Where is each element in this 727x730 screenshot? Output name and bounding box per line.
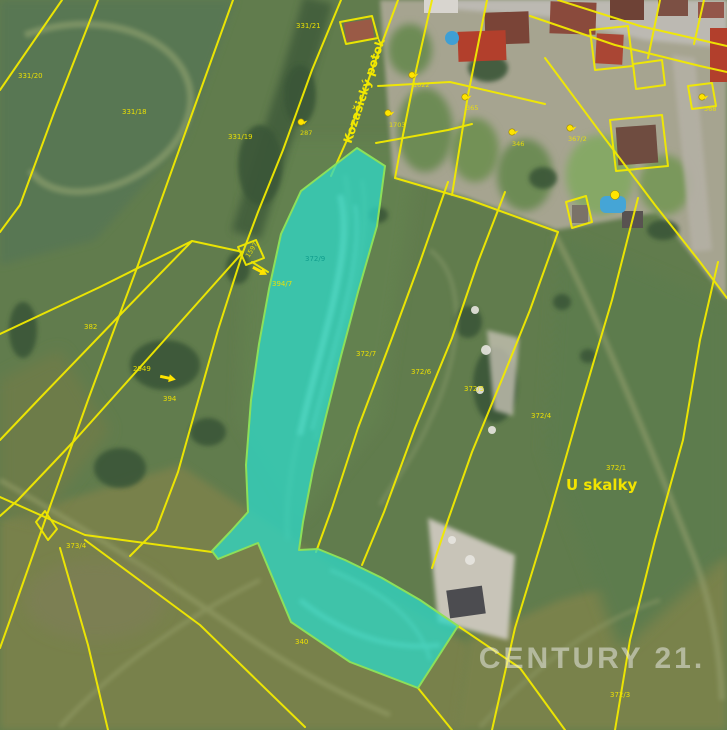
building-number-label: 365 bbox=[466, 104, 478, 112]
parcel-number-label: 2949 bbox=[133, 365, 151, 373]
parcel-number-label: 372/3 bbox=[610, 691, 630, 699]
parcel-number-label: 340 bbox=[295, 638, 308, 646]
red-court bbox=[710, 28, 727, 82]
parcel-number-label: 372/1 bbox=[606, 464, 626, 472]
house-roof bbox=[658, 0, 688, 16]
shed-roof bbox=[446, 586, 486, 619]
parcel-number-label: 372/7 bbox=[356, 350, 376, 358]
house-roof bbox=[344, 19, 374, 42]
bare-field bbox=[25, 560, 165, 640]
building-number-label: 346 bbox=[512, 140, 524, 148]
building-number-label: 368 bbox=[704, 105, 716, 113]
parcel-number-label: 394 bbox=[163, 395, 177, 403]
parcel-number-label: 372/5 bbox=[464, 385, 484, 393]
house-roof bbox=[616, 125, 659, 166]
building-marker-icon bbox=[611, 191, 620, 200]
century21-watermark: CENTURY 21. bbox=[479, 642, 705, 675]
aerial-cadastral-map: 331/20331/18331/19331/213822949394373/43… bbox=[0, 0, 727, 730]
parcel-number-label: 331/21 bbox=[296, 22, 321, 30]
building-number-label: 1022 bbox=[413, 81, 430, 89]
parcel-number-label: 331/20 bbox=[18, 72, 43, 80]
building-number-label: 287 bbox=[300, 129, 312, 137]
parcel-number-label: 372/4 bbox=[531, 412, 552, 420]
map-canvas: 331/20331/18331/19331/213822949394373/43… bbox=[0, 0, 727, 730]
parcel-number-label: 382 bbox=[84, 323, 97, 331]
parcel-number-label: 331/19 bbox=[228, 133, 253, 141]
building-number-label: 1703 bbox=[389, 121, 406, 129]
house-roof bbox=[572, 205, 588, 223]
highlight-number-label: 372/9 bbox=[305, 255, 325, 263]
parcel-number-label: 394/7 bbox=[272, 280, 292, 288]
parcel-number-label: 373/4 bbox=[66, 542, 87, 550]
building-number-label: 367/2 bbox=[568, 135, 587, 143]
parcel-number-label: 372/6 bbox=[411, 368, 432, 376]
house-roof bbox=[610, 0, 644, 20]
swimming-pool bbox=[445, 31, 459, 45]
red-court bbox=[457, 30, 506, 62]
place-name-label: U skalky bbox=[566, 476, 638, 494]
parcel-number-label: 331/18 bbox=[122, 108, 147, 116]
house-roof bbox=[595, 33, 624, 64]
